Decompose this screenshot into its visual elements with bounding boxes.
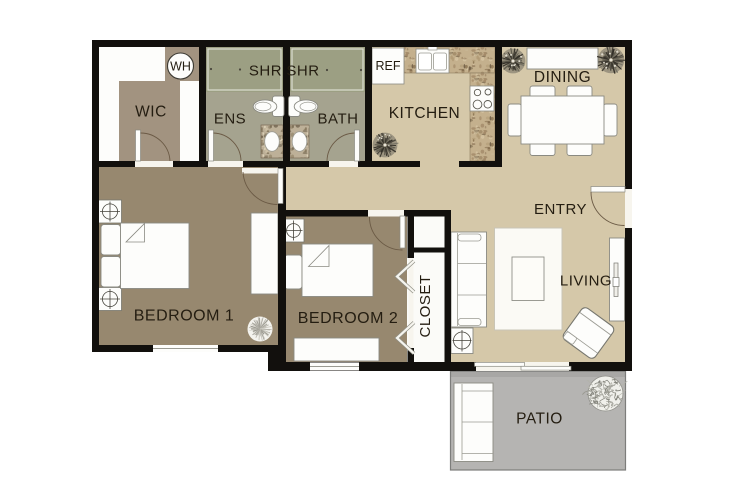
svg-text:WIC: WIC bbox=[135, 104, 167, 121]
svg-text:BEDROOM 1: BEDROOM 1 bbox=[134, 308, 235, 325]
svg-text:SHR: SHR bbox=[286, 63, 319, 80]
svg-text:WH: WH bbox=[170, 60, 191, 74]
svg-text:CLOSET: CLOSET bbox=[417, 274, 434, 337]
svg-text:REF: REF bbox=[376, 59, 401, 73]
svg-text:KITCHEN: KITCHEN bbox=[389, 105, 461, 122]
svg-text:ENTRY: ENTRY bbox=[534, 201, 587, 218]
svg-text:ENS: ENS bbox=[214, 111, 246, 128]
svg-text:BEDROOM 2: BEDROOM 2 bbox=[298, 310, 399, 327]
svg-text:SHR: SHR bbox=[249, 63, 282, 80]
svg-text:PATIO: PATIO bbox=[516, 411, 563, 428]
svg-text:BATH: BATH bbox=[318, 111, 359, 128]
svg-text:DINING: DINING bbox=[534, 69, 591, 86]
svg-text:LIVING: LIVING bbox=[560, 273, 612, 290]
